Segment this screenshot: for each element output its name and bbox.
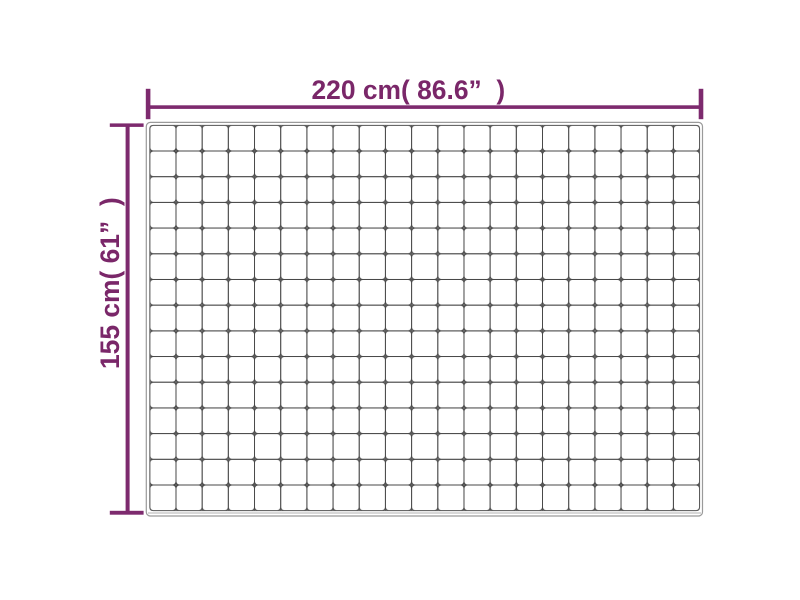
svg-text:155 cm( 61” ): 155 cm( 61” ) [95, 197, 125, 369]
svg-text:220 cm( 86.6” ): 220 cm( 86.6” ) [312, 75, 506, 105]
